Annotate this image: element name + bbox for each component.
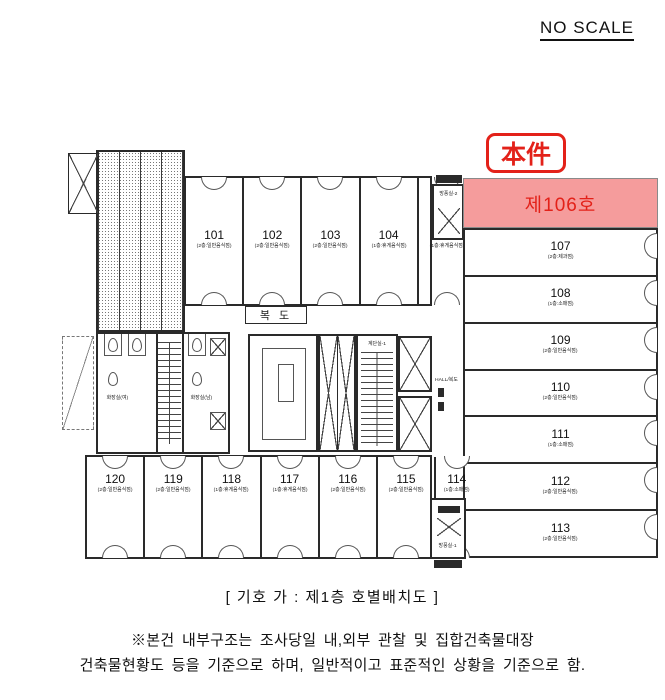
room-number: 107 — [550, 240, 570, 253]
toilet-women-label: 화장실(여) — [107, 394, 129, 401]
toilet-block: 화장실(여) 화장실(남) — [96, 332, 230, 454]
hall-label: HALL/복도 — [435, 376, 458, 383]
room-104: 104 (1층:휴게음식점) — [359, 178, 417, 304]
room-use: (2층:일반음식점) — [197, 242, 232, 249]
room-number: 117 — [280, 473, 299, 486]
room-use: (2층:일반음식점) — [313, 242, 348, 249]
room-number: 108 — [550, 287, 570, 300]
room-number: 118 — [222, 473, 241, 486]
room-use: (1층:소매점) — [444, 486, 470, 493]
wall-segment — [436, 175, 462, 183]
stair-flight — [361, 352, 393, 446]
room-number: 103 — [320, 229, 340, 242]
room-number: 119 — [164, 473, 183, 486]
room-use: (2층:일반음식점) — [543, 347, 578, 354]
room-use: (1층:휴게음식점) — [214, 486, 249, 493]
rooms-top-band: 101 (2층:일반음식점) 102 (2층:일반음식점) 103 (2층:일반… — [184, 176, 432, 306]
room-use: (1층:소매점) — [548, 441, 574, 448]
room-116: 116 (2층:일반음식점) — [318, 457, 376, 557]
hall-block — [438, 388, 444, 397]
room-use: (1층:휴게음식점) — [371, 242, 406, 249]
rooms-right-band: 107 (2층:제과점) 108 (1층:소매점) 109 (2층:일반음식점)… — [463, 228, 658, 558]
room-113: 113 (2층:일반음식점) — [465, 509, 656, 556]
stair-room: 계단실-1 — [356, 334, 398, 452]
room-use: (1층:휴게음식점) — [272, 486, 307, 493]
room-number: 110 — [551, 381, 570, 394]
room-use: (2층:일반음식점) — [330, 486, 365, 493]
room-use: (1층:휴게음식점) — [429, 242, 464, 249]
room-number: 104 — [379, 229, 399, 242]
caption: [ 기호 가 : 제1층 호별배치도 ] — [0, 586, 665, 607]
room-110: 110 (2층:일반음식점) — [465, 369, 656, 416]
room-number: 114 — [447, 473, 466, 486]
corridor-label: 복 도 — [245, 306, 307, 324]
room-120: 120 (2층:일반음식점) — [87, 457, 143, 557]
toilet-fixture — [192, 338, 202, 352]
room-119: 119 (2층:일반음식점) — [143, 457, 201, 557]
vestibule-top: 방풍실-2 — [432, 184, 464, 240]
appraisal-floorplan-page: NO SCALE 101 (2층:일반음식점) 102 (2층:일반음식점) 1… — [0, 0, 665, 700]
toilet-divider — [182, 334, 184, 452]
room-number: 115 — [396, 473, 415, 486]
room-use: (2층:일반음식점) — [389, 486, 424, 493]
room-number: 116 — [338, 473, 357, 486]
inner-duct-small — [278, 364, 294, 402]
footnote-line-2: 건축물현황도 등을 기준으로 하며, 일반적이고 표준적인 상황을 기준으로 함… — [0, 653, 665, 678]
room-use: (1층:소매점) — [548, 300, 574, 307]
vestibule-door-swing — [437, 518, 461, 536]
room-108: 108 (1층:소매점) — [465, 275, 656, 322]
rooms-bottom-band: 120 (2층:일반음식점) 119 (2층:일반음식점) 118 (1층:휴게… — [85, 455, 432, 559]
elevator-car — [398, 336, 432, 392]
elevator-shaft — [338, 336, 355, 450]
room-number: 109 — [550, 334, 570, 347]
ramp-hatch-area — [96, 150, 185, 332]
stair-room-label: 계단실-1 — [365, 340, 389, 347]
vestibule-top-label: 방풍실-2 — [439, 190, 456, 197]
room-109: 109 (2층:일반음식점) — [465, 322, 656, 369]
elevator-shaft — [320, 336, 338, 450]
hall-block — [438, 402, 444, 411]
subject-badge: 本件 — [486, 133, 566, 173]
room-number: 113 — [551, 522, 570, 535]
room-number: 102 — [262, 229, 282, 242]
vestibule-bar — [438, 506, 460, 513]
unit-106-highlight: 제106호 — [463, 178, 658, 228]
vestibule-door-swing — [438, 208, 460, 234]
washstand — [210, 338, 226, 356]
core-central-room — [248, 334, 318, 452]
room-103: 103 (2층:일반음식점) — [300, 178, 358, 304]
toilet-fixture — [108, 372, 118, 386]
room-use: (2층:일반음식점) — [98, 486, 133, 493]
toilet-fixture — [132, 338, 142, 352]
room-use: (2층:일반음식점) — [543, 535, 578, 542]
room-use: (2층:일반음식점) — [543, 394, 578, 401]
room-107: 107 (2층:제과점) — [465, 230, 656, 275]
elevator-shafts-left — [318, 334, 356, 452]
floor-plan: 101 (2층:일반음식점) 102 (2층:일반음식점) 103 (2층:일반… — [0, 0, 665, 580]
elevator-car — [398, 396, 432, 452]
room-use: (2층:일반음식점) — [255, 242, 290, 249]
wall-segment — [434, 560, 462, 568]
toilet-fixture — [192, 372, 202, 386]
toilet-fixture — [108, 338, 118, 352]
room-118: 118 (1층:휴게음식점) — [201, 457, 259, 557]
toilet-men-label: 화장실(남) — [191, 394, 213, 401]
room-101: 101 (2층:일반음식점) — [186, 178, 242, 304]
footnote: ※본건 내부구조는 조사당일 내,외부 관찰 및 집합건축물대장 건축물현황도 … — [0, 628, 665, 678]
room-111: 111 (1층:소매점) — [465, 415, 656, 462]
room-use: (2층:일반음식점) — [543, 488, 578, 495]
room-102: 102 (2층:일반음식점) — [242, 178, 300, 304]
unit-106-label: 제106호 — [525, 190, 597, 217]
room-112: 112 (2층:일반음식점) — [465, 462, 656, 509]
room-number: 101 — [204, 229, 224, 242]
washstand — [210, 412, 226, 430]
room-use: (2층:일반음식점) — [156, 486, 191, 493]
vestibule-bottom: 방풍실-1 — [430, 498, 466, 559]
footnote-line-1: ※본건 내부구조는 조사당일 내,외부 관찰 및 집합건축물대장 — [0, 628, 665, 653]
left-protrusion-box — [68, 153, 99, 214]
room-number: 120 — [105, 473, 125, 486]
room-number: 112 — [551, 475, 570, 488]
core-stair — [158, 342, 181, 444]
vestibule-bottom-label: 방풍실-1 — [439, 542, 457, 549]
room-use: (2층:제과점) — [548, 253, 574, 260]
room-117: 117 (1층:휴게음식점) — [260, 457, 318, 557]
room-115: 115 (2층:일반음식점) — [376, 457, 434, 557]
side-ramp — [62, 336, 94, 430]
room-number: 111 — [551, 428, 569, 441]
